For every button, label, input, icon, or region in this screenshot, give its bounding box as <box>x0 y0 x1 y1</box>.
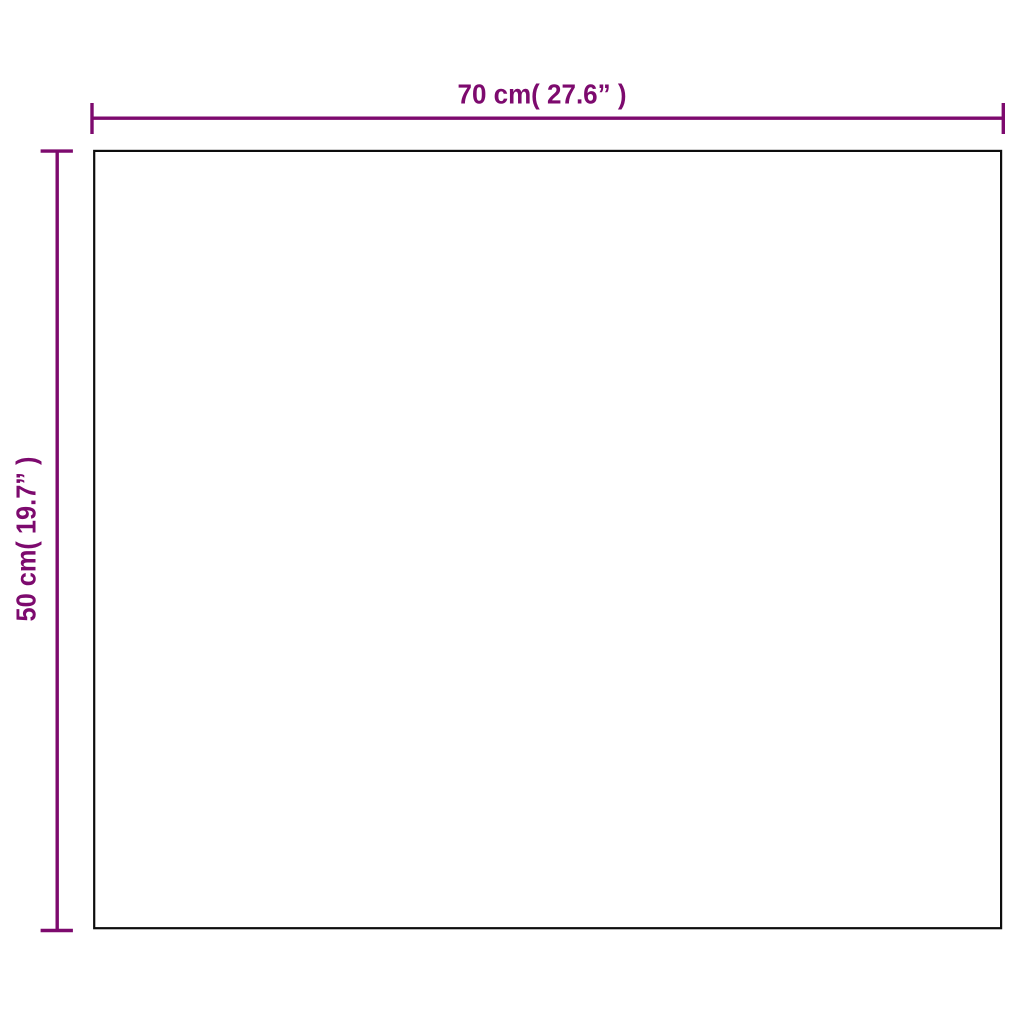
svg-text:50 cm( 19.7” ): 50 cm( 19.7” ) <box>11 457 42 622</box>
svg-text:70 cm( 27.6” ): 70 cm( 27.6” ) <box>458 78 627 109</box>
